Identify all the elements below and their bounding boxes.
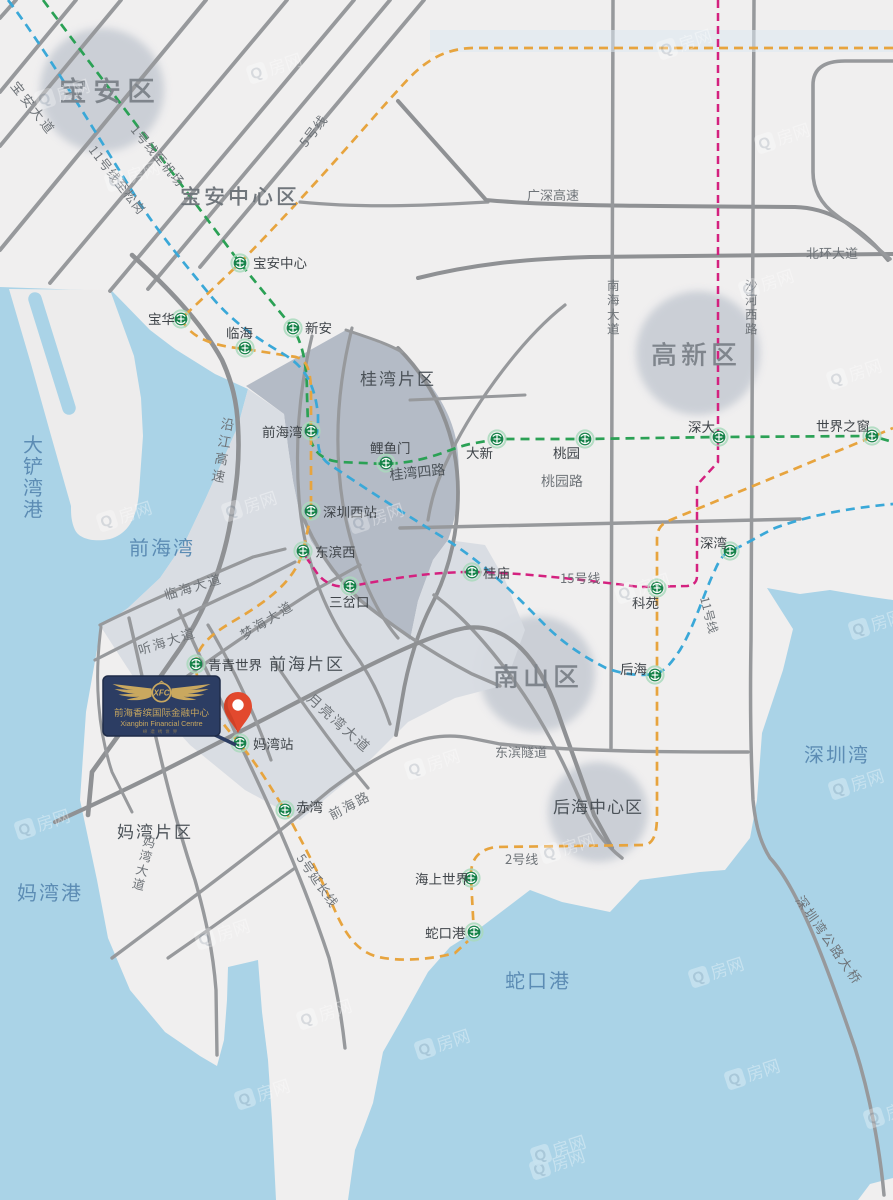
svg-text:Xiangbin Financial Centre: Xiangbin Financial Centre (120, 719, 202, 728)
svg-text:XFC: XFC (153, 688, 170, 697)
